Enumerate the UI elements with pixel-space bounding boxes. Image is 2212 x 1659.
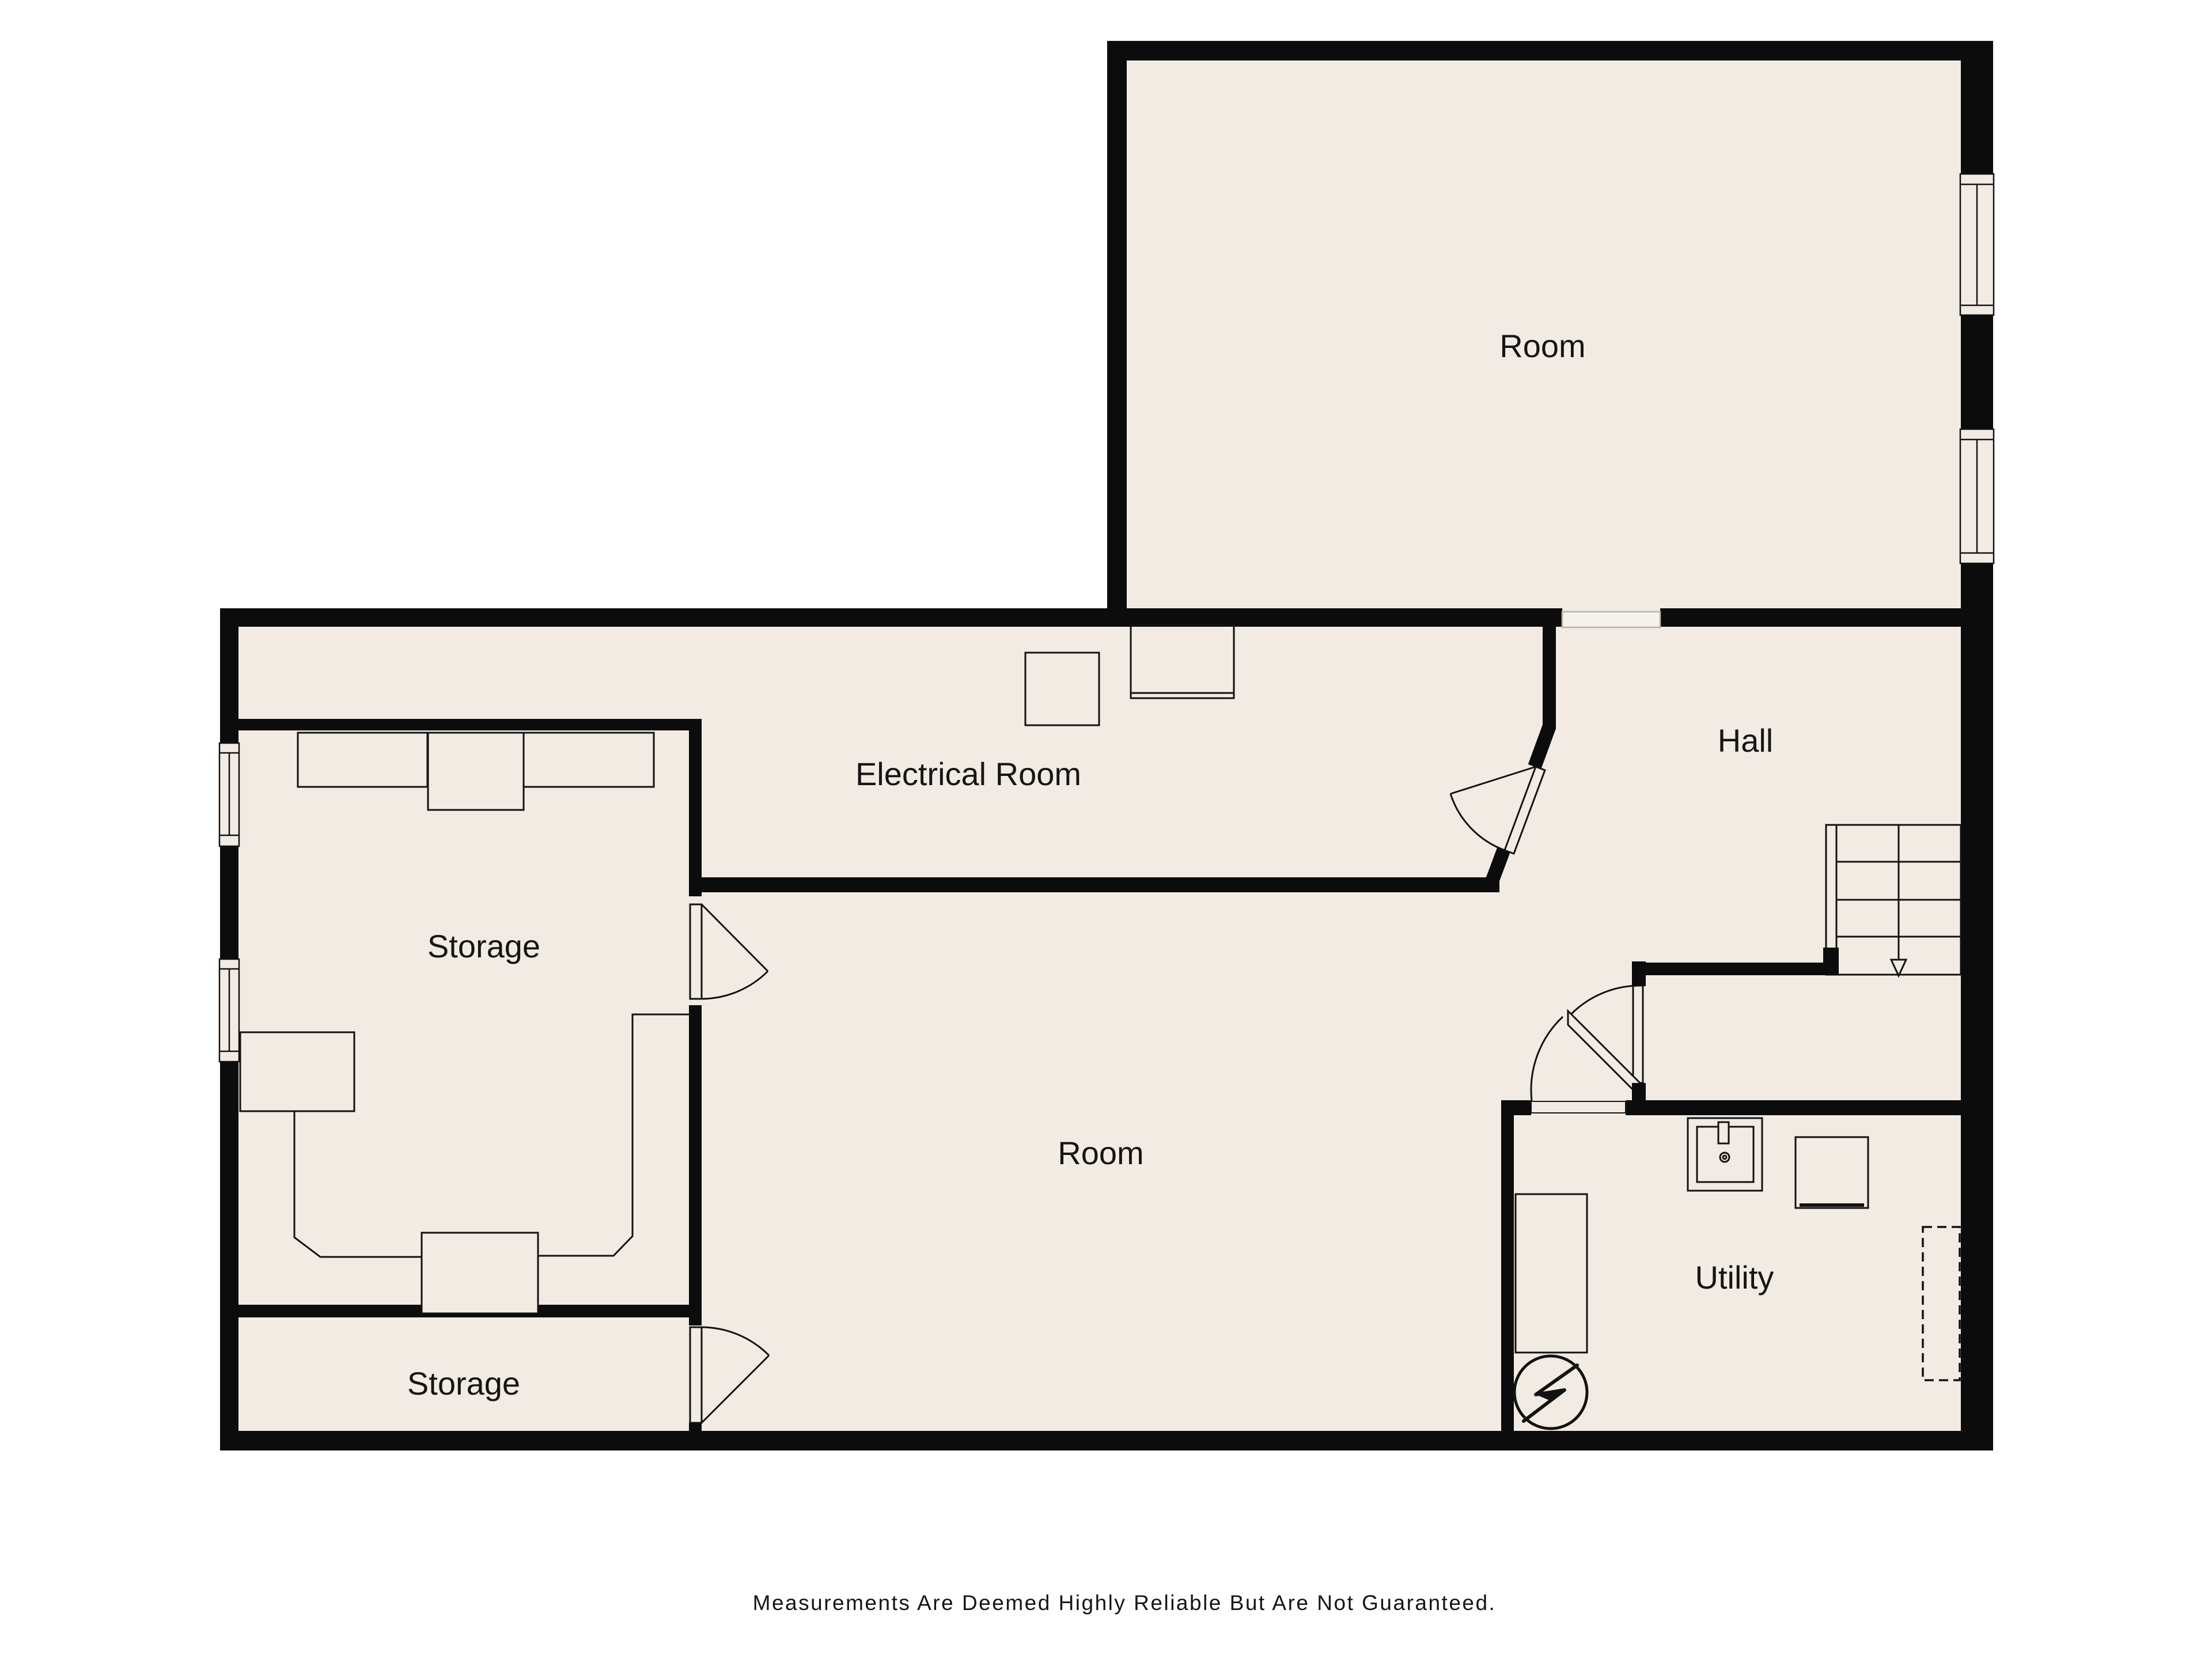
svg-text:Hall: Hall	[1718, 722, 1773, 759]
svg-text:Storage: Storage	[407, 1365, 520, 1402]
svg-text:Utility: Utility	[1695, 1259, 1774, 1296]
svg-text:Storage: Storage	[427, 928, 540, 964]
svg-text:Room: Room	[1499, 328, 1585, 364]
svg-text:Measurements Are Deemed Highly: Measurements Are Deemed Highly Reliable …	[753, 1591, 1497, 1615]
svg-text:Room: Room	[1058, 1135, 1143, 1171]
svg-text:Electrical Room: Electrical Room	[855, 756, 1081, 792]
